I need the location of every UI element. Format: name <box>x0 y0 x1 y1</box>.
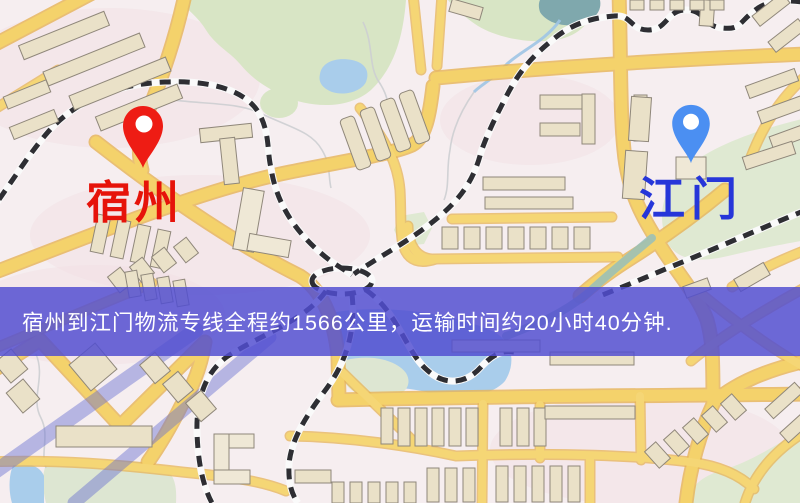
origin-label: 宿州 <box>86 180 182 225</box>
route-banner: 宿州到江门物流专线全程约1566公里，运输时间约20小时40分钟. <box>0 287 800 356</box>
destination-pin-icon[interactable] <box>668 103 714 165</box>
destination-label: 江门 <box>639 176 743 222</box>
origin-pin-icon[interactable] <box>119 104 167 170</box>
map-background <box>0 0 800 503</box>
route-banner-text: 宿州到江门物流专线全程约1566公里，运输时间约20小时40分钟. <box>0 306 673 337</box>
map-view: 宿州到江门物流专线全程约1566公里，运输时间约20小时40分钟. 宿州 江门 <box>0 0 800 503</box>
